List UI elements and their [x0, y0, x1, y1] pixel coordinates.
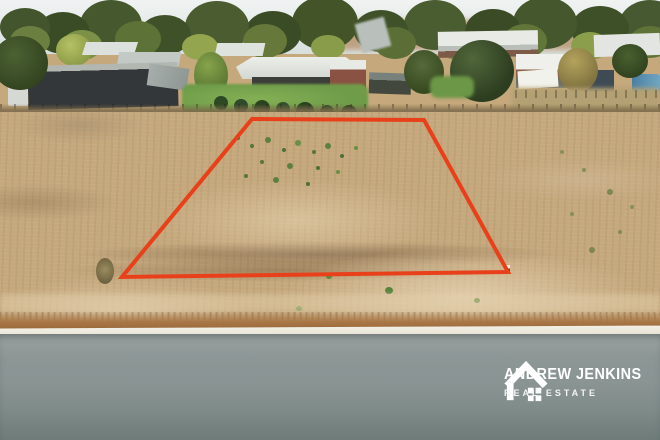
tree-autumn: [558, 48, 598, 92]
agency-watermark: ANDREW JENKINS REAL ESTATE: [504, 352, 660, 412]
aerial-photo: ANDREW JENKINS REAL ESTATE: [0, 0, 660, 440]
sandy-track: [0, 294, 660, 312]
weed-cluster-upper: [236, 136, 240, 140]
agency-name-line1: ANDREW JENKINS: [504, 366, 642, 384]
dry-bush: [96, 258, 114, 284]
lawn-patch-right: [430, 76, 474, 98]
house-white-roof-behind-center: [215, 43, 266, 56]
agency-name-line2: REAL ESTATE: [504, 388, 657, 398]
white-pergola: [517, 69, 558, 90]
agency-name: ANDREW JENKINS REAL ESTATE: [504, 366, 657, 398]
weed-cluster-right: [560, 150, 564, 154]
green-tufts: [326, 274, 332, 279]
tree-right: [612, 44, 648, 78]
fence-line-right: [515, 90, 660, 98]
survey-peg: [505, 265, 510, 274]
